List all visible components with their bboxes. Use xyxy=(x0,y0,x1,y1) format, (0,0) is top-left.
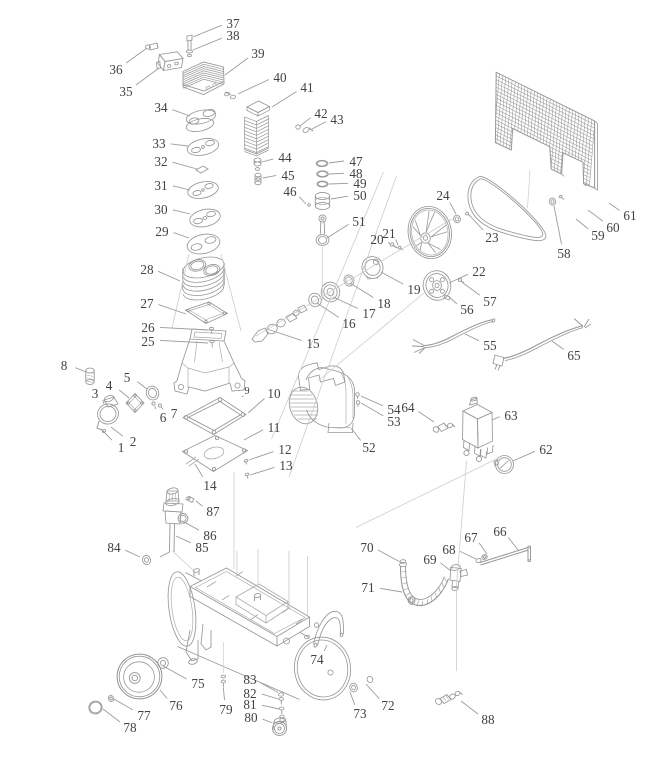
svg-text:67: 67 xyxy=(464,530,478,545)
svg-text:75: 75 xyxy=(191,676,205,691)
svg-text:16: 16 xyxy=(342,316,356,331)
svg-text:30: 30 xyxy=(154,202,168,217)
svg-text:23: 23 xyxy=(485,230,499,245)
svg-text:28: 28 xyxy=(140,262,154,277)
svg-text:78: 78 xyxy=(123,720,137,735)
svg-text:34: 34 xyxy=(154,100,168,115)
svg-text:21: 21 xyxy=(382,226,395,241)
svg-text:79: 79 xyxy=(219,702,233,717)
svg-text:10: 10 xyxy=(267,386,281,401)
svg-text:14: 14 xyxy=(203,478,217,493)
svg-text:11: 11 xyxy=(268,420,281,435)
svg-text:46: 46 xyxy=(283,184,297,199)
svg-text:45: 45 xyxy=(281,168,295,183)
svg-text:6: 6 xyxy=(160,410,167,425)
svg-text:18: 18 xyxy=(377,296,391,311)
svg-text:65: 65 xyxy=(567,348,581,363)
svg-text:83: 83 xyxy=(243,672,257,687)
svg-text:80: 80 xyxy=(244,710,258,725)
svg-text:33: 33 xyxy=(152,136,166,151)
svg-text:24: 24 xyxy=(436,188,450,203)
svg-text:57: 57 xyxy=(483,294,497,309)
svg-text:51: 51 xyxy=(352,214,365,229)
svg-text:50: 50 xyxy=(353,188,367,203)
svg-text:29: 29 xyxy=(155,224,169,239)
svg-text:9: 9 xyxy=(244,386,249,397)
svg-text:4: 4 xyxy=(106,378,113,393)
svg-text:56: 56 xyxy=(460,302,474,317)
svg-text:72: 72 xyxy=(381,698,394,713)
svg-text:43: 43 xyxy=(330,112,344,127)
svg-text:58: 58 xyxy=(557,246,571,261)
svg-text:87: 87 xyxy=(206,504,220,519)
svg-text:61: 61 xyxy=(623,208,636,223)
svg-text:1: 1 xyxy=(118,440,125,455)
svg-text:19: 19 xyxy=(407,282,421,297)
svg-text:35: 35 xyxy=(119,84,133,99)
svg-text:59: 59 xyxy=(591,228,605,243)
svg-text:2: 2 xyxy=(130,434,137,449)
svg-text:74: 74 xyxy=(310,652,324,667)
svg-text:73: 73 xyxy=(353,706,367,721)
svg-text:5: 5 xyxy=(124,370,131,385)
svg-text:68: 68 xyxy=(442,542,456,557)
svg-text:26: 26 xyxy=(141,320,155,335)
svg-text:52: 52 xyxy=(362,440,375,455)
svg-text:70: 70 xyxy=(360,540,374,555)
svg-text:71: 71 xyxy=(361,580,374,595)
svg-text:44: 44 xyxy=(278,150,292,165)
svg-text:88: 88 xyxy=(481,712,495,727)
svg-text:8: 8 xyxy=(61,358,68,373)
svg-text:22: 22 xyxy=(472,264,485,279)
svg-text:63: 63 xyxy=(504,408,518,423)
svg-text:15: 15 xyxy=(306,336,320,351)
svg-text:64: 64 xyxy=(401,400,415,415)
svg-text:38: 38 xyxy=(226,28,240,43)
svg-text:27: 27 xyxy=(140,296,154,311)
svg-text:7: 7 xyxy=(171,406,178,421)
svg-text:55: 55 xyxy=(483,338,497,353)
svg-text:62: 62 xyxy=(539,442,552,457)
svg-text:32: 32 xyxy=(154,154,167,169)
svg-text:69: 69 xyxy=(423,552,437,567)
svg-text:3: 3 xyxy=(92,386,99,401)
svg-text:66: 66 xyxy=(493,524,507,539)
svg-text:39: 39 xyxy=(251,46,265,61)
svg-text:36: 36 xyxy=(109,62,123,77)
svg-text:41: 41 xyxy=(300,80,313,95)
svg-text:76: 76 xyxy=(169,698,183,713)
svg-text:40: 40 xyxy=(273,70,287,85)
svg-text:85: 85 xyxy=(195,540,209,555)
svg-text:42: 42 xyxy=(314,106,327,121)
svg-text:12: 12 xyxy=(278,442,291,457)
svg-text:84: 84 xyxy=(107,540,121,555)
svg-text:54: 54 xyxy=(387,402,401,417)
svg-text:77: 77 xyxy=(137,708,151,723)
svg-text:31: 31 xyxy=(154,178,167,193)
svg-text:13: 13 xyxy=(279,458,293,473)
svg-text:60: 60 xyxy=(606,220,620,235)
svg-text:17: 17 xyxy=(362,306,376,321)
svg-text:25: 25 xyxy=(141,334,155,349)
